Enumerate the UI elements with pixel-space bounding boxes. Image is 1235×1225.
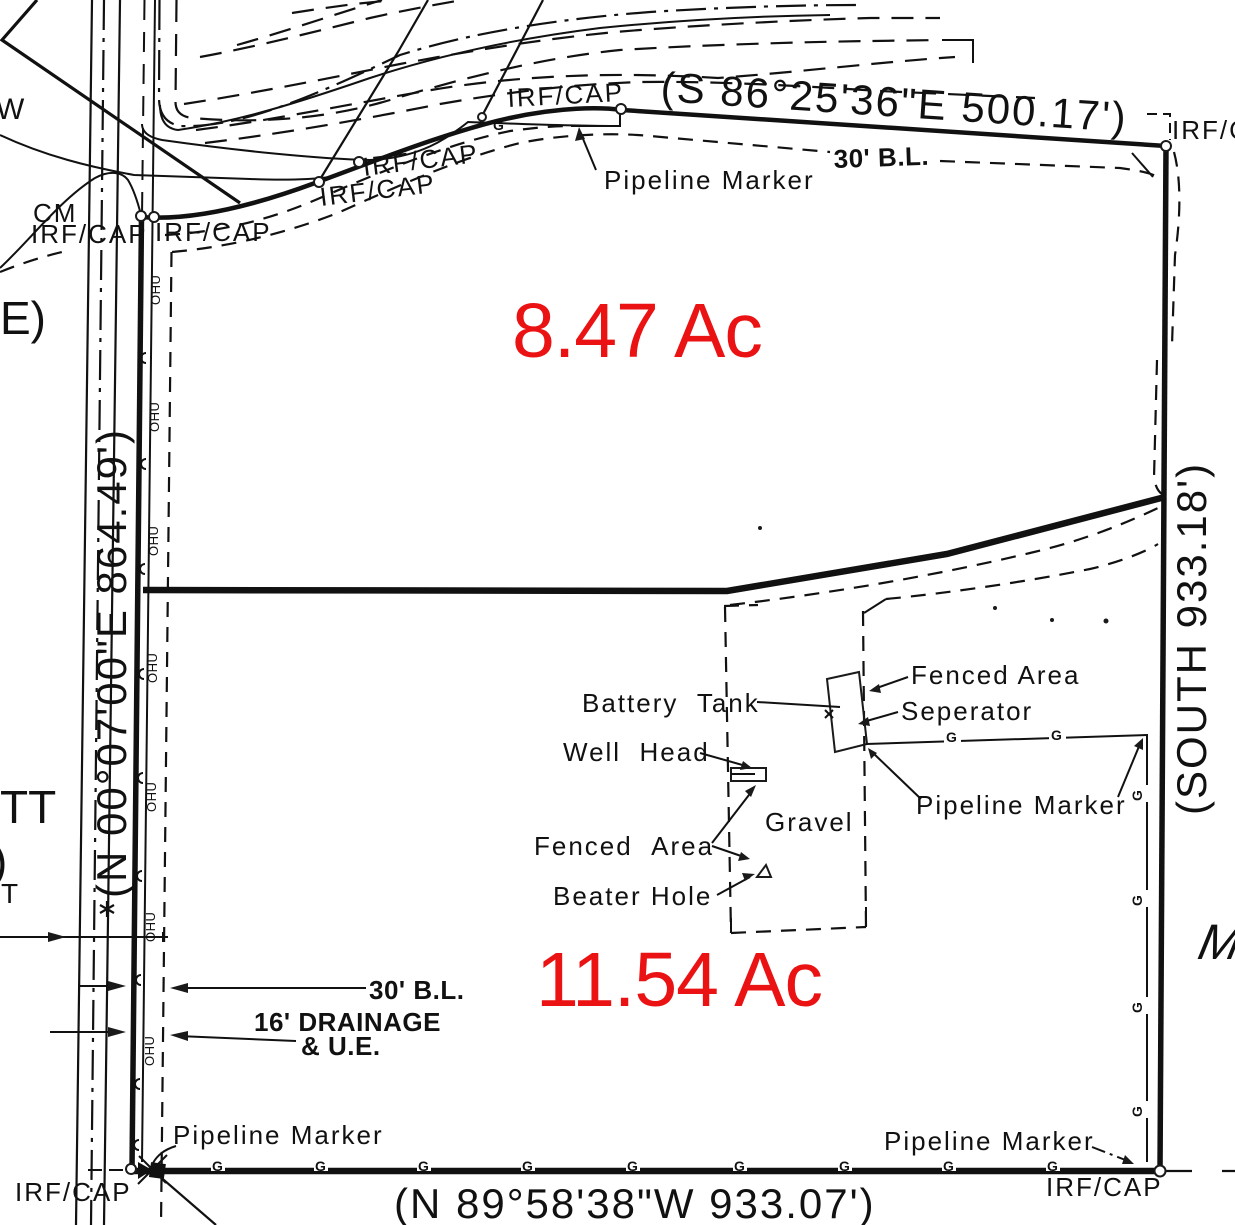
svg-text:G: G xyxy=(839,1158,850,1174)
svg-text:30' B.L.: 30' B.L. xyxy=(369,975,464,1005)
svg-text:OHU: OHU xyxy=(145,653,160,683)
svg-text:G: G xyxy=(1129,1002,1145,1013)
svg-text:G: G xyxy=(315,1158,326,1174)
svg-text:TT: TT xyxy=(0,781,56,833)
svg-text:IRF/CAP: IRF/CAP xyxy=(31,219,148,249)
svg-text:IRF/CAP: IRF/CAP xyxy=(1046,1172,1163,1202)
svg-text:Pipeline Marker: Pipeline Marker xyxy=(173,1120,384,1150)
svg-text:OHU: OHU xyxy=(143,912,158,942)
svg-text:G: G xyxy=(493,117,504,133)
svg-text:G: G xyxy=(1129,790,1145,801)
svg-text:Seperator: Seperator xyxy=(901,696,1033,726)
svg-text:OHU: OHU xyxy=(142,1036,157,1066)
svg-text:G: G xyxy=(734,1158,745,1174)
svg-text:OHU: OHU xyxy=(147,402,162,432)
svg-text:Pipeline Marker: Pipeline Marker xyxy=(604,165,815,195)
svg-text:G: G xyxy=(1129,1106,1145,1117)
svg-text:IRF/CAP: IRF/CAP xyxy=(1172,115,1235,145)
svg-text:(N 00°07'00"E 864.49'): (N 00°07'00"E 864.49') xyxy=(88,428,135,898)
svg-text:G: G xyxy=(1129,895,1145,906)
svg-text:G: G xyxy=(212,1158,223,1174)
svg-text:30' B.L.: 30' B.L. xyxy=(833,141,929,174)
svg-text:Pipeline Marker: Pipeline Marker xyxy=(884,1126,1095,1156)
svg-text:11.54 Ac: 11.54 Ac xyxy=(536,937,822,1023)
svg-text:G: G xyxy=(1051,727,1062,743)
svg-text:Fenced Area: Fenced Area xyxy=(911,660,1080,690)
svg-text:OHU: OHU xyxy=(148,275,163,305)
svg-text:IRF/CAP: IRF/CAP xyxy=(155,217,272,247)
svg-text:Well Head: Well Head xyxy=(563,737,710,767)
svg-text:Battery Tank: Battery Tank xyxy=(582,688,760,718)
svg-text:E): E) xyxy=(0,292,46,344)
svg-text:8.47 Ac: 8.47 Ac xyxy=(512,288,762,374)
svg-text:G: G xyxy=(418,1158,429,1174)
svg-text:Beater Hole: Beater Hole xyxy=(553,881,712,911)
svg-text:(SOUTH 933.18'): (SOUTH 933.18') xyxy=(1168,462,1215,815)
svg-text:OHU: OHU xyxy=(144,782,159,812)
svg-text:Fenced Area: Fenced Area xyxy=(534,831,714,861)
svg-text:IRF/CAP: IRF/CAP xyxy=(15,1177,132,1207)
svg-text:Pipeline Marker: Pipeline Marker xyxy=(916,790,1127,820)
svg-text:G: G xyxy=(522,1158,533,1174)
svg-text:Gravel: Gravel xyxy=(765,807,854,837)
svg-text:G: G xyxy=(627,1158,638,1174)
svg-text:IRF/CAP: IRF/CAP xyxy=(507,77,625,113)
svg-text:W: W xyxy=(0,93,25,126)
svg-text:G: G xyxy=(946,729,957,745)
svg-text:G: G xyxy=(943,1158,954,1174)
svg-text:T: T xyxy=(1,878,18,909)
svg-text:(N 89°58'38"W 933.07'): (N 89°58'38"W 933.07') xyxy=(394,1180,876,1225)
svg-text:OHU: OHU xyxy=(146,526,161,556)
svg-text:& U.E.: & U.E. xyxy=(301,1031,381,1061)
